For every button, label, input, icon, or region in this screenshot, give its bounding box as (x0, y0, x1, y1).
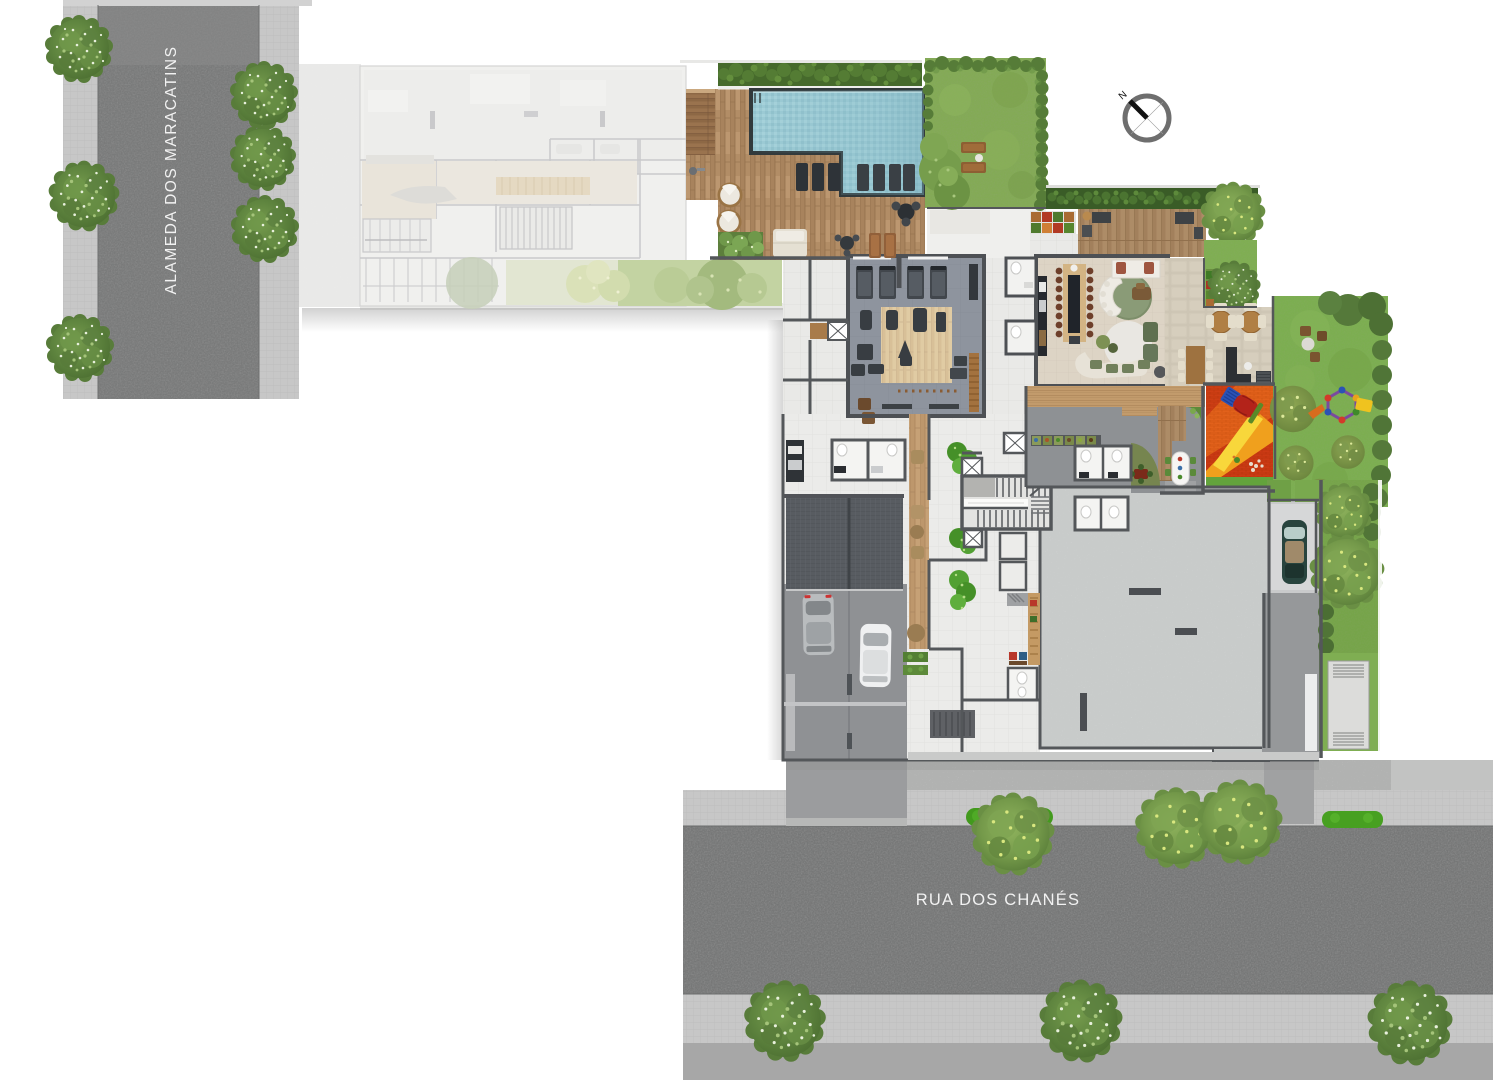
svg-text:RUA DOS CHANÉS: RUA DOS CHANÉS (916, 890, 1080, 909)
svg-text:ALAMEDA DOS MARACATINS: ALAMEDA DOS MARACATINS (163, 46, 180, 295)
